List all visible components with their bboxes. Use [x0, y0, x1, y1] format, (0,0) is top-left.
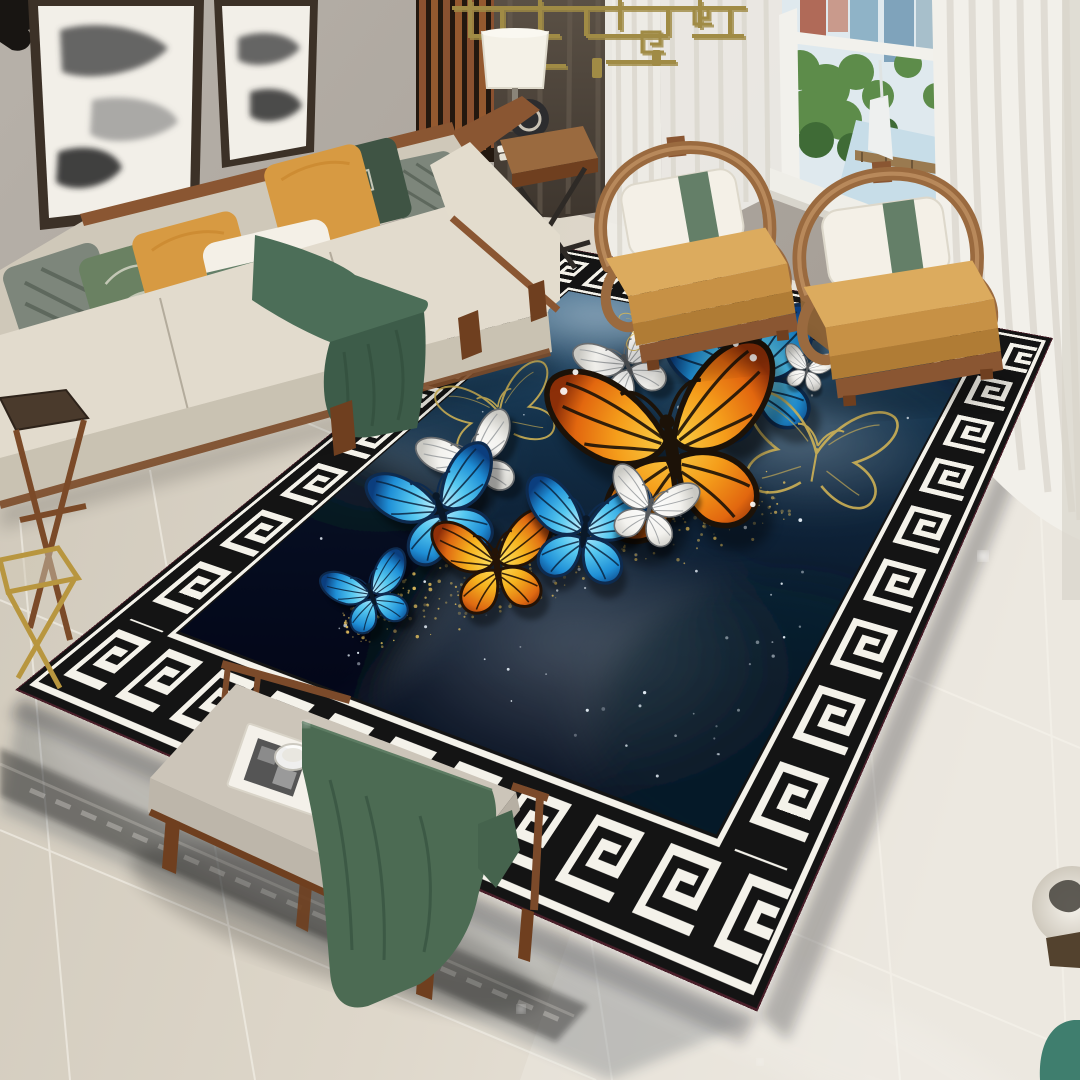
foreground: [0, 0, 1080, 1080]
living-room-photo: [0, 0, 1080, 1080]
bench: [115, 664, 554, 1047]
decor-teal-vase: [1040, 1020, 1080, 1080]
armchair-left: [579, 125, 813, 388]
decor-sphere: [1032, 866, 1080, 968]
